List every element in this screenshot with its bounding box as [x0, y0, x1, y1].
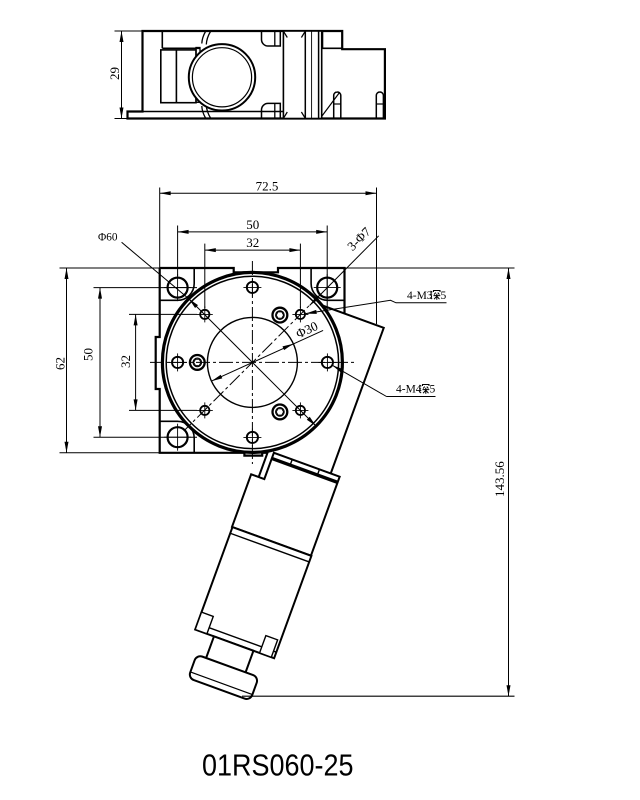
svg-text:Φ60: Φ60: [98, 230, 118, 244]
svg-text:01RS060-25: 01RS060-25: [202, 748, 354, 783]
svg-text:50: 50: [246, 217, 259, 232]
svg-text:143.56: 143.56: [492, 461, 507, 497]
svg-text:5: 5: [441, 290, 447, 302]
svg-text:4-M4: 4-M4: [396, 384, 422, 396]
svg-text:32: 32: [118, 355, 133, 368]
svg-text:4-M3: 4-M3: [407, 290, 433, 302]
svg-text:5: 5: [430, 384, 436, 396]
svg-text:72.5: 72.5: [256, 179, 279, 194]
svg-text:29: 29: [107, 67, 122, 80]
svg-text:32: 32: [246, 235, 259, 250]
svg-text:50: 50: [81, 348, 96, 361]
svg-text:62: 62: [53, 357, 68, 370]
